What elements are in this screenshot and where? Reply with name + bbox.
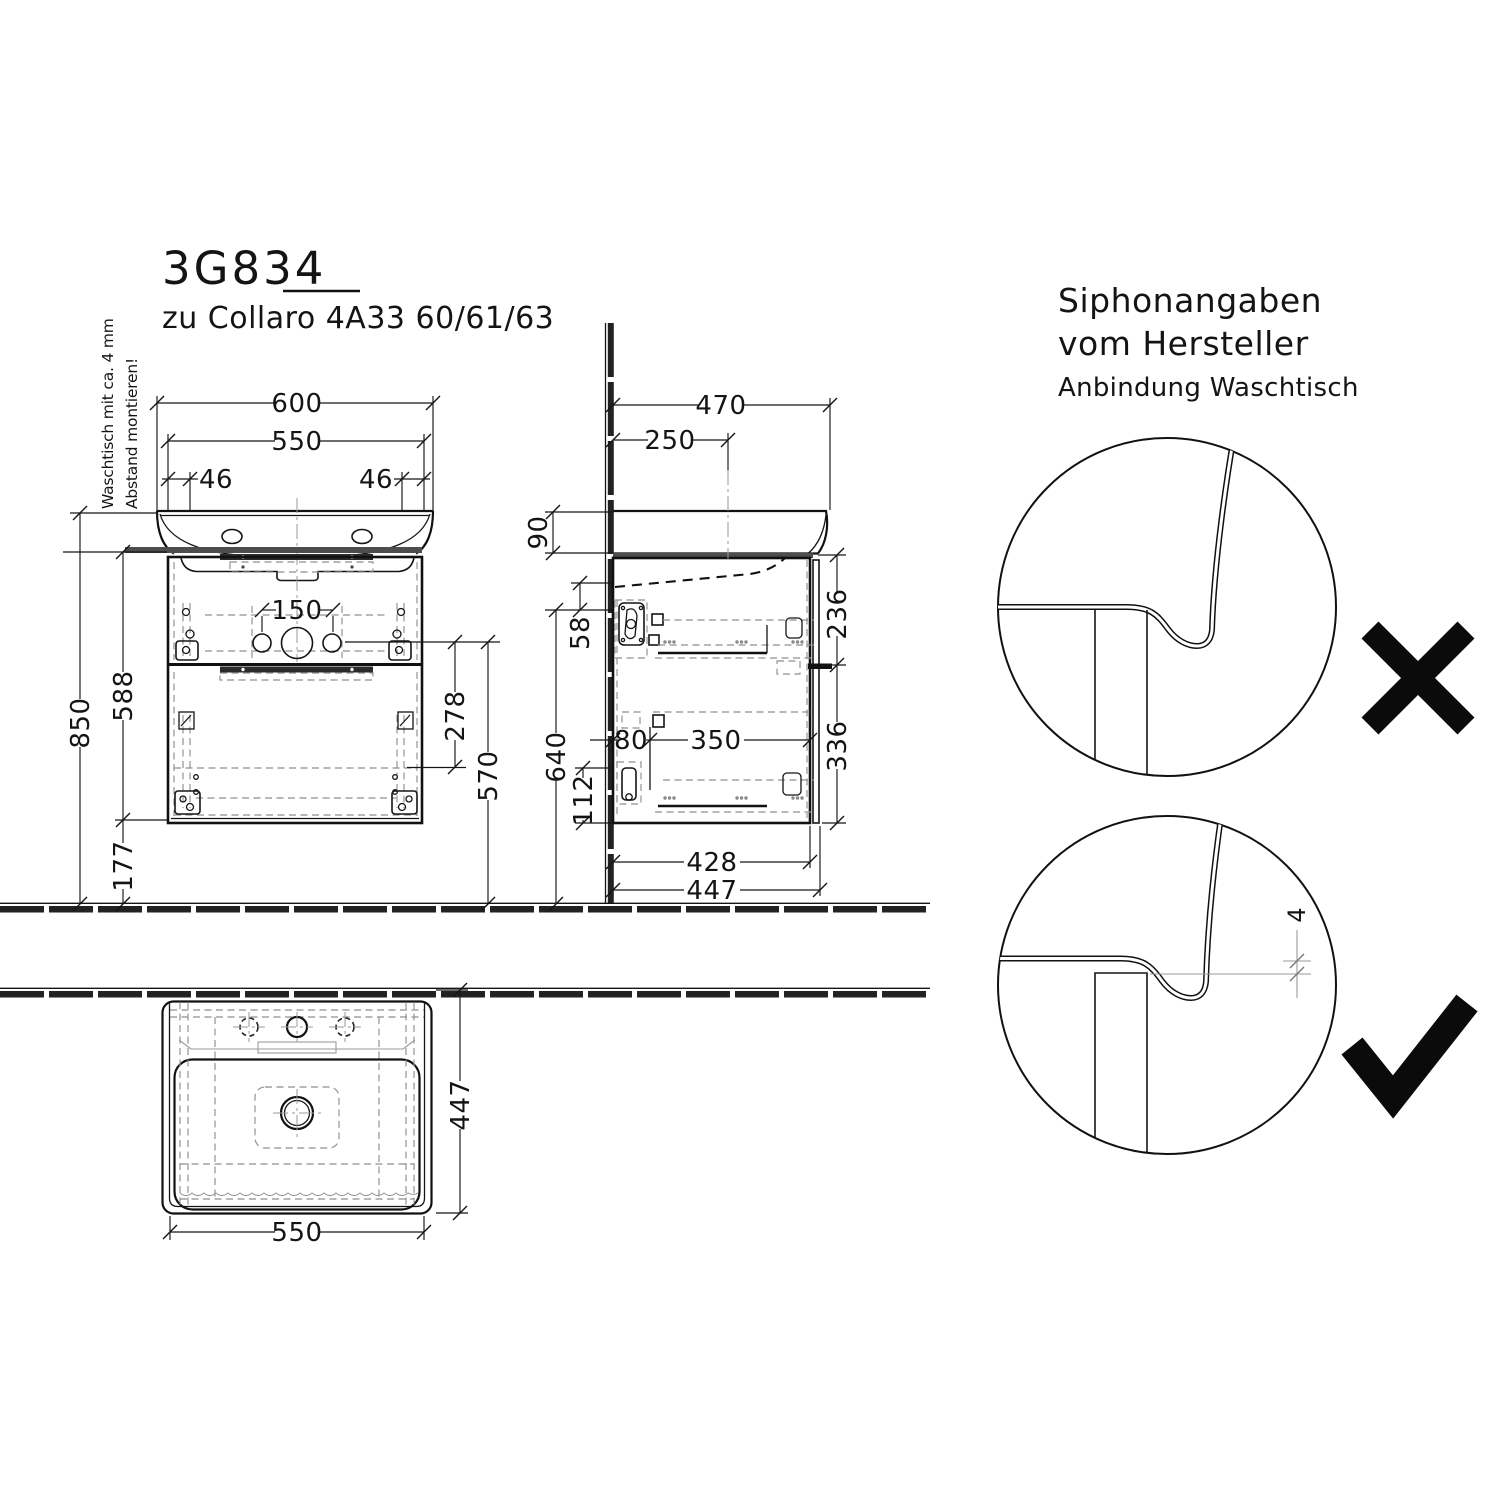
siphon-detail-section: Siphonangaben vom Hersteller Anbindung W…: [998, 281, 1467, 1160]
dim-depth-total: 470: [695, 391, 746, 421]
side-view-dimensions: 470 250 90 58 640 112 80: [524, 391, 853, 911]
title-block: 3G834 zu Collaro 4A33 60/61/63 Waschtisc…: [99, 242, 554, 509]
drawing-series: zu Collaro 4A33 60/61/63: [162, 301, 554, 336]
siphon-title-line2: vom Hersteller: [1058, 324, 1309, 363]
dim-overall-depth: 447: [686, 876, 737, 906]
dim-width-total: 600: [271, 389, 322, 419]
dim-siphon-gap: 58: [566, 616, 596, 650]
mounting-note-line1: Waschtisch mit ca. 4 mm: [99, 318, 117, 509]
dim-upper-drawer: 236: [823, 588, 853, 639]
dim-plan-width: 550: [271, 1218, 322, 1248]
dim-offset-left: 46: [199, 465, 233, 495]
dim-basin-rim: 90: [524, 515, 554, 549]
dim-height-total: 850: [66, 697, 96, 748]
dim-slide-height: 112: [569, 774, 599, 825]
detail-circle-wrong: [998, 436, 1336, 790]
dim-outlet-height: 640: [542, 731, 572, 782]
plan-view: 447 550: [163, 983, 477, 1248]
dim-width-basin: 550: [271, 427, 322, 457]
dim-plan-depth: 447: [446, 1079, 476, 1130]
dim-offset-right: 46: [359, 465, 393, 495]
vanity-dimension-drawing: 3G834 zu Collaro 4A33 60/61/63 Waschtisc…: [0, 0, 1500, 1500]
drawing-code: 3G834: [162, 242, 326, 295]
side-view-internals: [615, 560, 832, 818]
dim-height-cabinet: 588: [109, 670, 139, 721]
checkmark-icon: [1352, 1003, 1467, 1097]
dim-height-clearance: 177: [109, 840, 139, 891]
dim-body-depth: 428: [686, 848, 737, 878]
siphon-title-line1: Siphonangaben: [1058, 281, 1322, 320]
siphon-subtitle: Anbindung Waschtisch: [1058, 373, 1359, 403]
x-mark-icon: [1370, 630, 1466, 726]
technical-drawing-page: 3G834 zu Collaro 4A33 60/61/63 Waschtisc…: [0, 0, 1500, 1500]
dim-slide-length: 350: [690, 726, 741, 756]
dim-tap-distance: 250: [644, 426, 695, 456]
detail-circle-right: 4: [998, 816, 1336, 1160]
front-lower-drawer-internals: [174, 672, 417, 816]
dim-siphon-clearance: 4: [1283, 907, 1311, 922]
dim-lower-drawer: 336: [823, 720, 853, 771]
mounting-note-line2: Abstand montieren!: [123, 358, 141, 509]
dim-drain-to-bracket: 278: [441, 690, 471, 741]
dim-back-offset: 80: [614, 726, 648, 756]
dim-faucet-span: 150: [271, 596, 322, 626]
side-view: 470 250 90 58 640 112 80: [524, 391, 853, 911]
dim-drain-height: 570: [474, 750, 504, 801]
